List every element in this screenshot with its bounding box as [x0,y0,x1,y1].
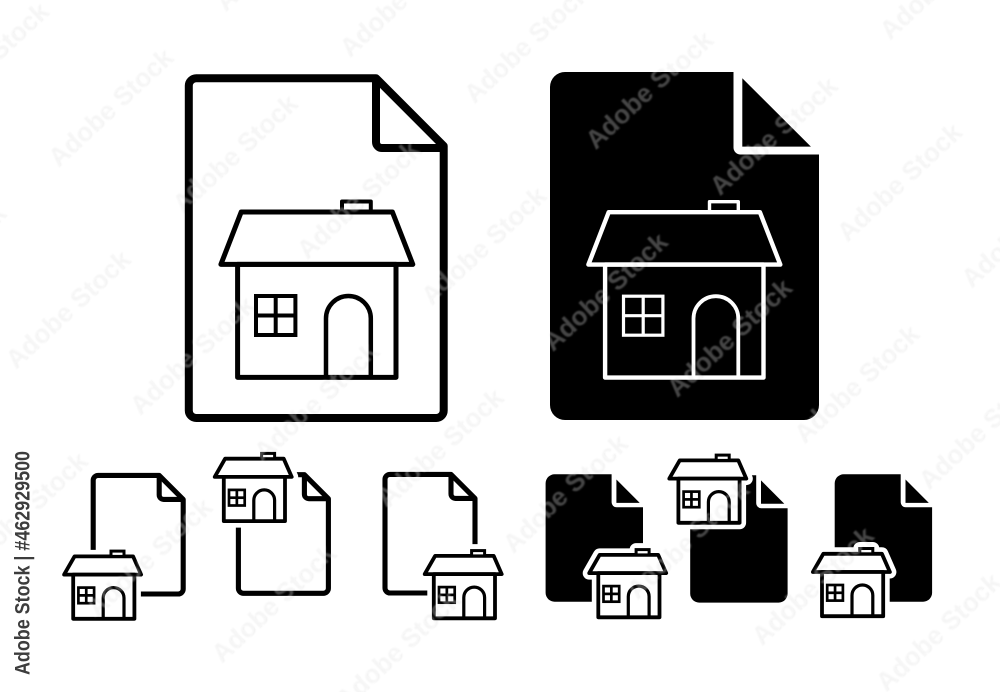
svg-text:Adobe Stock | #462929500: Adobe Stock | #462929500 [12,451,35,675]
